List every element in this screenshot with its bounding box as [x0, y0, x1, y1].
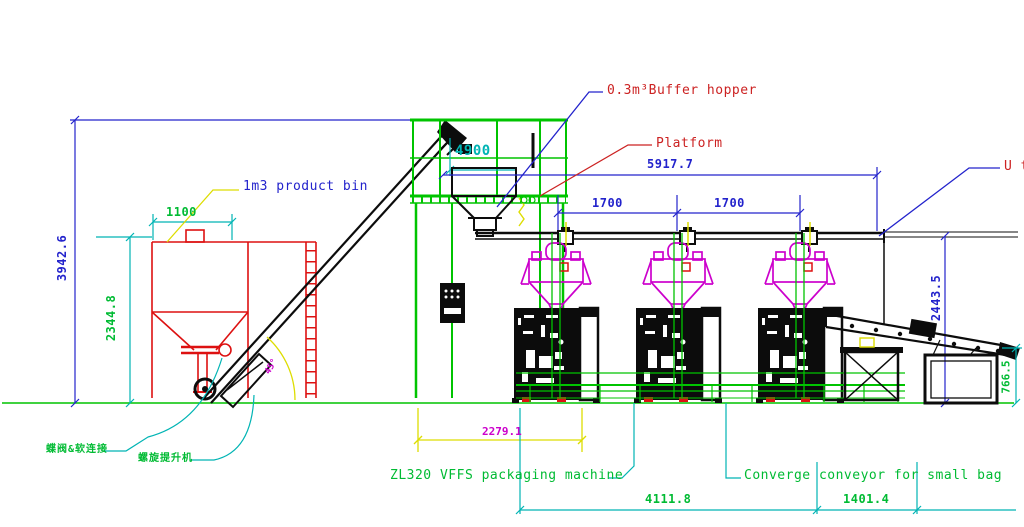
label-u-type: U ty — [1004, 160, 1024, 173]
cad-drawing-packaging-line: 1100 3942.6 2344.8 4900 5917.7 1700 1700… — [0, 0, 1024, 527]
station-2 — [634, 222, 722, 403]
dim-text-rail-height: 2443.5 — [930, 275, 942, 321]
discharge-box — [925, 355, 997, 403]
dim-text-pitch-1: 1700 — [592, 197, 623, 209]
dim-rail-span — [439, 167, 881, 231]
station-3 — [756, 222, 844, 403]
dim-text-bin-height: 2344.8 — [105, 295, 117, 341]
takeoff-conveyor — [826, 240, 1020, 360]
label-screw-elevator: 螺旋提升机 — [138, 454, 193, 464]
overhead-rail — [475, 229, 1018, 243]
label-valve-connection: 蝶阀&软连接 — [46, 445, 108, 455]
label-converge-conveyor: Converge conveyor for small bag — [744, 469, 1002, 482]
label-buffer-hopper: 0.3m³Buffer hopper — [607, 84, 757, 97]
dim-text-overall-height: 3942.6 — [56, 235, 68, 281]
station-1 — [512, 222, 600, 403]
screw-elevator — [195, 120, 472, 407]
dim-text-platform: 4900 — [455, 144, 491, 158]
dim-bottom-lengths — [516, 408, 1016, 514]
label-product-bin: 1m3 product bin — [243, 180, 368, 193]
dim-text-bin-width: 1100 — [166, 206, 197, 218]
dim-text-pitch-2: 1700 — [714, 197, 745, 209]
dim-text-rail-span: 5917.7 — [647, 158, 693, 170]
control-panel — [440, 283, 465, 323]
label-vffs-machine: ZL320 VFFS packaging machine — [390, 469, 623, 482]
label-platform: Platform — [656, 137, 723, 150]
dim-text-line-length: 4111.8 — [645, 493, 691, 505]
drawing-canvas — [0, 0, 1024, 527]
dim-text-infeed-length: 2279.1 — [482, 426, 522, 437]
dim-text-takeoff-length: 1401.4 — [843, 493, 889, 505]
dim-text-discharge-height: 766.5 — [1001, 360, 1012, 393]
